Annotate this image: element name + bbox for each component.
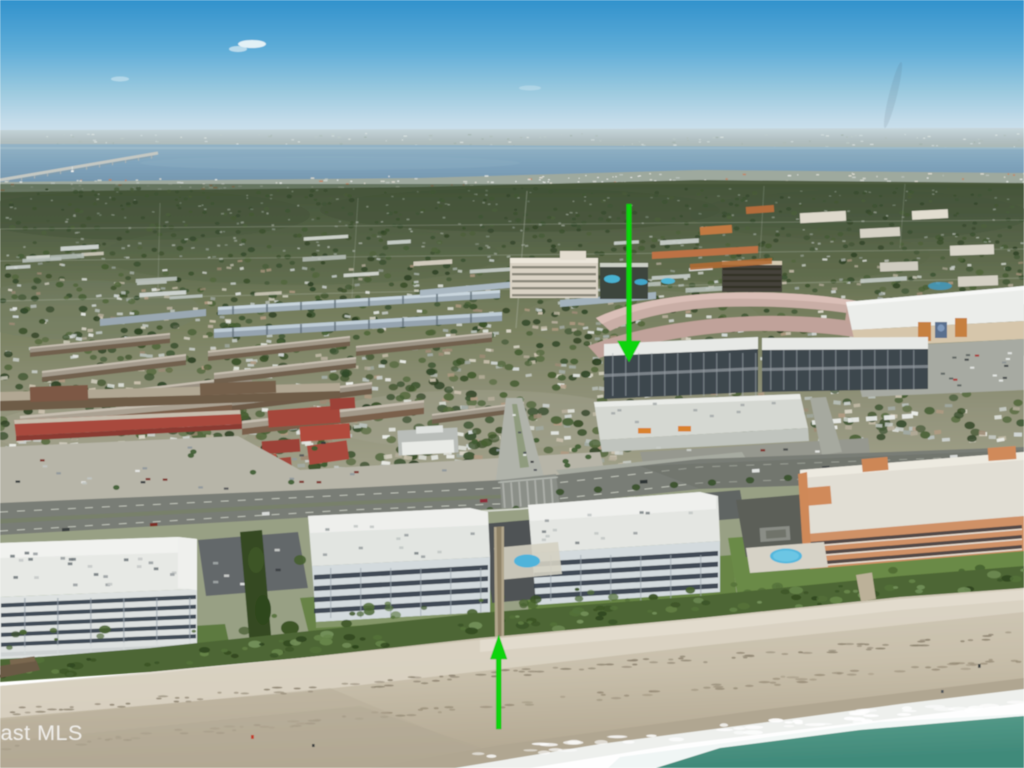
svg-text:oast MLS: oast MLS <box>0 721 83 745</box>
